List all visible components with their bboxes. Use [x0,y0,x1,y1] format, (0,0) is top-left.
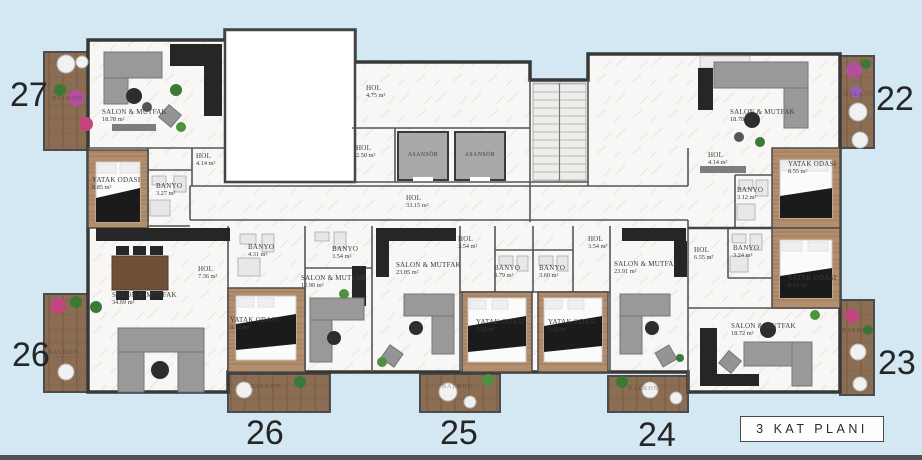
apartment-number-22: 22 [876,82,914,116]
floor-plan-title: 3 KAT PLANI [756,422,868,436]
room-label-yatak-26: YATAK ODASI8.92 m² [230,316,278,332]
room-label-hol-25: HOL3.54 m² [458,235,477,251]
room-label-salon-25: SALON & MUTFAK23.85 m² [396,261,461,277]
room-label-yatak-27: YATAK ODASI8.85 m² [92,176,140,192]
room-label-salon-24: SALON & MUTFAK23.91 m² [614,260,679,276]
room-label-balkon-23: BALKON [842,328,873,335]
room-label-yatak-24: YATAK ODASI9.25 m² [548,318,596,334]
room-label-banyo-25: BANYO3.79 m² [494,264,520,280]
void-area [225,30,355,182]
room-label-balkon-26-left: BALKON [48,350,79,357]
room-label-salon-26: SALON & MUTFAK34.69 m² [112,291,177,307]
apartment-number-27: 27 [10,78,48,112]
room-label-salon-22: SALON & MUTFAK18.78 m² [730,108,795,124]
room-label-banyo-22: BANYO3.12 m² [737,186,763,202]
room-label-balkon-25: BALKON [442,384,473,391]
room-label-salon-27: SALON & MUTFAK18.78 m² [102,108,167,124]
apartment-number-26-bottom: 26 [246,416,284,450]
room-label-hol-lift-lobby: HOL2.50 m² [356,144,375,160]
room-label-yatak-25: YATAK ODASI9.25 m² [476,318,524,334]
apartment-number-26-left: 26 [12,338,50,372]
room-label-hol-23: HOL6.55 m² [694,246,713,262]
room-label-hol-26: HOL7.36 m² [198,265,217,281]
room-label-elevator-2: ASANSÖR [465,152,496,159]
apartment-number-25: 25 [440,416,478,450]
apartment-number-23: 23 [878,346,916,380]
room-label-hol-22: HOL4.14 m² [708,151,727,167]
room-label-balkon-26-bottom: BALKON [250,384,281,391]
room-label-yatak-22: YATAK ODASI8.55 m² [788,160,836,176]
room-label-salon-23: SALON & MUTFAK18.72 m² [731,322,796,338]
room-label-banyo-23: BANYO3.24 m² [733,244,759,260]
room-label-balkon-27: BALKON [52,96,83,103]
room-label-banyo-24: BANYO3.60 m² [539,264,565,280]
bottom-border-strip [0,455,922,460]
room-label-yatak-23: YATAK ODASI8.83 m² [788,274,836,290]
room-label-balkon-22: BALKON [844,92,875,99]
room-label-hol-stair: HOL4.75 m² [366,84,385,100]
staircase [533,83,586,181]
floor-plan-title-box: 3 KAT PLANI [740,416,884,442]
room-label-banyo-26: BANYO4.31 m² [248,243,274,259]
room-label-salon-26b: SALON & MUTFAK12.90 m² [301,274,366,290]
room-label-hol-27: HOL4.14 m² [196,152,215,168]
room-label-balkon-24: BALKON [628,386,659,393]
floor-plan-page: SALON & MUTFAK18.78 m² YATAK ODASI8.85 m… [0,0,922,460]
room-label-main-corridor: HOL33.15 m² [406,194,429,210]
room-label-banyo-27: BANYO3.27 m² [156,182,182,198]
apartment-number-24: 24 [638,418,676,452]
room-label-elevator-1: ASANSÖR [408,152,439,159]
room-label-hol-24: HOL3.54 m² [588,235,607,251]
room-label-banyo-26b: BANYO3.54 m² [332,245,358,261]
